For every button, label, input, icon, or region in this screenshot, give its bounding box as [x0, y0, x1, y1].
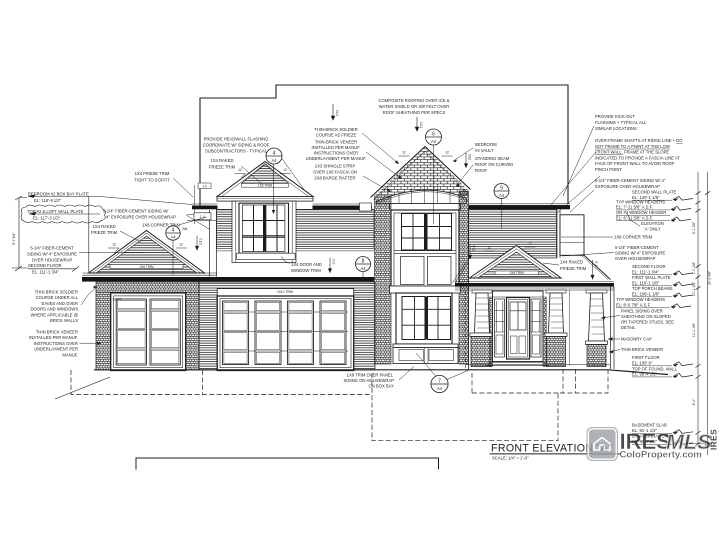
- svg-text:SECOND WALL PLATE: SECOND WALL PLATE: [632, 190, 676, 195]
- svg-text:IRES: IRES: [710, 429, 719, 450]
- svg-text:4" EXPOSURE OVER HOUSEWRAP: 4" EXPOSURE OVER HOUSEWRAP: [106, 215, 176, 220]
- svg-text:1X8 TRIM OVER PANEL: 1X8 TRIM OVER PANEL: [347, 373, 394, 378]
- svg-text:1X4 FRIEZE TRIM: 1X4 FRIEZE TRIM: [135, 171, 170, 176]
- svg-text:1X6 TRIM: 1X6 TRIM: [509, 271, 524, 275]
- svg-text:SECOND FLOOR: SECOND FLOOR: [28, 263, 62, 268]
- svg-text:PANEL SIDING OVER: PANEL SIDING OVER: [621, 309, 663, 314]
- svg-text:1-0: 1-0: [202, 184, 207, 188]
- svg-text:1X8 CORNER TRIM: 1X8 CORNER TRIM: [142, 223, 181, 228]
- svg-text:13.4: 13.4: [419, 122, 423, 128]
- svg-text:BEDROOM: BEDROOM: [475, 142, 497, 147]
- svg-text:WHERE APPLICABLE @: WHERE APPLICABLE @: [30, 312, 78, 317]
- svg-text:2X8 BARGE RAFTER: 2X8 BARGE RAFTER: [314, 176, 355, 181]
- svg-text:A4: A4: [437, 386, 443, 391]
- svg-text:5-1/4" FIBER-CEMENT: 5-1/4" FIBER-CEMENT: [615, 245, 659, 250]
- svg-text:BEDROOM #2 BOX BAY PLATE: BEDROOM #2 BOX BAY PLATE: [28, 192, 89, 197]
- svg-text:5-1/4" FIBER-CEMENT: 5-1/4" FIBER-CEMENT: [30, 246, 74, 251]
- svg-text:OVER HOUSEWRAP: OVER HOUSEWRAP: [32, 258, 73, 263]
- svg-text:A4: A4: [360, 266, 366, 271]
- svg-text:EXPOSURE OVER HOUSEWRAP: EXPOSURE OVER HOUSEWRAP: [595, 184, 660, 189]
- svg-text:FLASHING + TYPICAL ALL: FLASHING + TYPICAL ALL: [595, 120, 647, 125]
- svg-text:PROVIDE KICK-OUT: PROVIDE KICK-OUT: [595, 114, 635, 119]
- svg-text:4: 4: [172, 228, 175, 234]
- svg-text:WINDOW TRIM: WINDOW TRIM: [291, 268, 321, 273]
- svg-text:INSTALLED PER MANUF.: INSTALLED PER MANUF.: [311, 145, 360, 150]
- svg-text:5/12: 5/12: [468, 154, 472, 160]
- svg-text:5-1/4" FIBER-CEMENT SIDING W/: 5-1/4" FIBER-CEMENT SIDING W/: [103, 209, 169, 214]
- svg-text:ELEVATION: ELEVATION: [641, 221, 664, 226]
- svg-text:NOT FRAME TO A POINT AT THE LO: NOT FRAME TO A POINT AT THE LOW: [595, 144, 670, 149]
- svg-text:16070: 16070: [113, 297, 122, 301]
- svg-text:TYP WINDOW HEADERS: TYP WINDOW HEADERS: [616, 199, 665, 204]
- svg-text:DETAIL: DETAIL: [621, 325, 636, 330]
- svg-text:BRICK WALLS: BRICK WALLS: [50, 318, 78, 323]
- svg-text:THIN BRICK VENEER: THIN BRICK VENEER: [621, 347, 663, 352]
- svg-text:#4 VAULT: #4 VAULT: [475, 148, 494, 153]
- svg-text:1X4 DOOR AND: 1X4 DOOR AND: [291, 262, 322, 267]
- svg-text:INSTALLED PER MANUF.: INSTALLED PER MANUF.: [29, 335, 78, 340]
- svg-text:1'-0: 1'-0: [332, 259, 336, 264]
- svg-text:7: 7: [438, 379, 441, 385]
- svg-text:A4: A4: [271, 158, 277, 163]
- svg-text:PROVIDE HEADWALL FLASHING: PROVIDE HEADWALL FLASHING: [204, 137, 269, 142]
- svg-text:EAVES AND OVER: EAVES AND OVER: [42, 301, 78, 306]
- svg-text:SIDING W/ 4" EXPOSURE: SIDING W/ 4" EXPOSURE: [615, 251, 665, 256]
- svg-text:9'-1: 9'-1: [594, 261, 598, 266]
- svg-text:A4: A4: [499, 193, 505, 198]
- svg-text:FRIEZE TRIM: FRIEZE TRIM: [209, 165, 236, 170]
- svg-text:EL: 118'-9 1/2": EL: 118'-9 1/2": [34, 198, 62, 203]
- svg-text:10'-1 1/8": 10'-1 1/8": [692, 281, 696, 296]
- svg-text:12: 12: [283, 168, 287, 172]
- svg-text:MANUF.: MANUF.: [62, 352, 78, 357]
- svg-text:4'-1 1/8": 4'-1 1/8": [692, 221, 696, 234]
- svg-text:FIRST WALL PLATE: FIRST WALL PLATE: [632, 275, 671, 280]
- svg-text:EL: 7'-11 5/8" A.S.F.: EL: 7'-11 5/8" A.S.F.: [616, 205, 653, 210]
- svg-text:1X8 CORNER TRIM: 1X8 CORNER TRIM: [614, 235, 653, 240]
- svg-text:FRONT WALL. FRAME AT THE SLOPE: FRONT WALL. FRAME AT THE SLOPE: [595, 150, 669, 155]
- svg-text:THIN-BRICK VENEER: THIN-BRICK VENEER: [315, 140, 357, 145]
- svg-text:1X10 TRIM: 1X10 TRIM: [277, 290, 293, 294]
- svg-text:'A' ONLY: 'A' ONLY: [644, 227, 661, 232]
- svg-text:SIMILAR LOCATIONS: SIMILAR LOCATIONS: [595, 126, 637, 131]
- svg-text:BASEMENT SLAB: BASEMENT SLAB: [632, 423, 667, 428]
- svg-text:SIDING ON HOUSEWRAP: SIDING ON HOUSEWRAP: [344, 378, 395, 383]
- svg-text:4'-0": 4'-0": [692, 398, 696, 406]
- svg-text:FRIEZE TRIM: FRIEZE TRIM: [560, 266, 587, 271]
- svg-text:OR TAPERED STUDS, SEE: OR TAPERED STUDS, SEE: [621, 320, 674, 325]
- svg-text:8: 8: [362, 259, 365, 265]
- svg-text:TYP WINDOW HEADERS: TYP WINDOW HEADERS: [616, 297, 665, 302]
- svg-text:1X3 SHINGLE STRIP: 1X3 SHINGLE STRIP: [315, 164, 356, 169]
- svg-text:THIN BRICK VENEER: THIN BRICK VENEER: [36, 329, 78, 334]
- svg-text:MASONRY CAP: MASONRY CAP: [621, 337, 652, 342]
- svg-text:12.4: 12.4: [335, 110, 339, 116]
- svg-text:6: 6: [432, 132, 435, 138]
- svg-text:5/12: 5/12: [472, 245, 476, 251]
- svg-text:4: 4: [273, 151, 276, 157]
- svg-text:TOP PORCH BEAMS: TOP PORCH BEAMS: [632, 286, 673, 291]
- svg-text:10'-1 1/8": 10'-1 1/8": [692, 322, 696, 337]
- svg-text:12: 12: [528, 242, 532, 246]
- svg-text:12: 12: [487, 246, 491, 250]
- svg-text:ROOF SHEATHING PER SPECS: ROOF SHEATHING PER SPECS: [383, 110, 446, 115]
- svg-text:12: 12: [112, 243, 116, 247]
- svg-text:FRIEZE TRIM: FRIEZE TRIM: [91, 230, 118, 235]
- svg-text:INDICATED TO PROVIDE A FASCIA: INDICATED TO PROVIDE A FASCIA LINE AT: [595, 155, 680, 160]
- svg-text:EL: 110'-1 1/8": EL: 110'-1 1/8": [632, 281, 660, 286]
- svg-text:12: 12: [402, 151, 406, 155]
- svg-text:SHEATHING ON SLOPED: SHEATHING ON SLOPED: [621, 314, 671, 319]
- svg-text:1X4 RAKED: 1X4 RAKED: [92, 224, 115, 229]
- svg-text:1X4 RAKED: 1X4 RAKED: [560, 260, 583, 265]
- svg-text:SUBCONTRACTORS - TYPICAL: SUBCONTRACTORS - TYPICAL: [205, 149, 268, 154]
- svg-text:EL: 117'-3 1/2": EL: 117'-3 1/2": [33, 216, 61, 221]
- svg-text:30'-2 5/8": 30'-2 5/8": [708, 270, 712, 285]
- svg-text:EL: 109'-1 1/8": EL: 109'-1 1/8": [632, 292, 660, 297]
- svg-text:1'-0 1/8": 1'-0 1/8": [692, 261, 696, 274]
- svg-text:OVER-FRAME SHAFTS AT RIDGE LIN: OVER-FRAME SHAFTS AT RIDGE LINE + DO: [595, 138, 683, 143]
- svg-text:12: 12: [238, 168, 242, 172]
- svg-text:OVER HOUSEWRAP: OVER HOUSEWRAP: [615, 256, 656, 261]
- svg-text:THIN BRICK SOLDIER: THIN BRICK SOLDIER: [35, 289, 78, 294]
- svg-text:UNDERLAYMENT PER MANUF.: UNDERLAYMENT PER MANUF.: [306, 156, 367, 161]
- svg-text:DOORS AND WINDOWS: DOORS AND WINDOWS: [31, 307, 79, 312]
- svg-text:EL: 99'-4 1/2": EL: 99'-4 1/2": [632, 372, 658, 377]
- svg-text:ON BOX BAY: ON BOX BAY: [368, 384, 394, 389]
- svg-text:1X6 TRIM: 1X6 TRIM: [139, 265, 154, 269]
- svg-text:EL: 111'-1 3/4": EL: 111'-1 3/4": [32, 270, 59, 275]
- svg-text:OVER 1X8 FASCIA ON: OVER 1X8 FASCIA ON: [313, 170, 357, 175]
- svg-text:ROOF: ROOF: [475, 168, 488, 173]
- svg-text:5-1/4" FIBER-CEMENT SIDING W/: 5-1/4" FIBER-CEMENT SIDING W/ 4": [595, 178, 666, 183]
- svg-text:COURSE UNDER ALL: COURSE UNDER ALL: [36, 295, 79, 300]
- svg-text:BM,: BM,: [183, 227, 189, 231]
- svg-text:FACE OF FRONT WALL TO AVOID RO: FACE OF FRONT WALL TO AVOID ROOF: [595, 161, 675, 166]
- svg-text:THIN-BRICK SOLDIER: THIN-BRICK SOLDIER: [314, 127, 358, 132]
- svg-text:12: 12: [445, 151, 449, 155]
- svg-text:FIRST FLOOR: FIRST FLOOR: [632, 355, 660, 360]
- svg-text:1X4 RAKED: 1X4 RAKED: [210, 158, 233, 163]
- svg-text:SCALE: 1/4" = 1'-0": SCALE: 1/4" = 1'-0": [492, 455, 529, 460]
- svg-text:12: 12: [179, 243, 183, 247]
- svg-text:9'-7 3/4": 9'-7 3/4": [12, 232, 16, 245]
- svg-text:UNDERLAYMENT PER: UNDERLAYMENT PER: [34, 347, 78, 352]
- svg-text:INSTRUCTIONS OVER: INSTRUCTIONS OVER: [314, 151, 358, 156]
- svg-text:A4: A4: [431, 139, 437, 144]
- svg-text:EL: 8'-0 7/8" A.S.F.: EL: 8'-0 7/8" A.S.F.: [616, 303, 651, 308]
- svg-text:INSTRUCTIONS OVER: INSTRUCTIONS OVER: [34, 341, 78, 346]
- svg-text:SECOND FLOOR: SECOND FLOOR: [632, 264, 666, 269]
- svg-text:A4: A4: [170, 235, 176, 240]
- svg-text:1X6 TRIM: 1X6 TRIM: [258, 184, 273, 188]
- svg-text:COMPOSITE ROOFING OVER ICE &: COMPOSITE ROOFING OVER ICE &: [379, 98, 450, 103]
- svg-text:WATER SHIELD OR 30# FELT OVER: WATER SHIELD OR 30# FELT OVER: [379, 104, 450, 109]
- svg-text:SIDING W/ 4" EXPOSURE: SIDING W/ 4" EXPOSURE: [27, 252, 77, 257]
- svg-text:COORDINATE W/ SIDING & ROOF: COORDINATE W/ SIDING & ROOF: [203, 143, 270, 148]
- svg-text:EL: 100'-0": EL: 100'-0": [632, 361, 653, 366]
- svg-text:ColoProperty.com: ColoProperty.com: [620, 449, 702, 460]
- svg-text:TIGHT TO SOFFIT: TIGHT TO SOFFIT: [134, 178, 170, 183]
- svg-text:OR #2 WINDOW HEADER: OR #2 WINDOW HEADER: [616, 210, 666, 215]
- svg-text:PINCH POINT: PINCH POINT: [595, 167, 622, 172]
- svg-text:9: 9: [500, 186, 503, 192]
- svg-text:EL: 111'-1 3/4": EL: 111'-1 3/4": [632, 270, 659, 275]
- svg-text:ROOF ON CURVED: ROOF ON CURVED: [475, 162, 513, 167]
- svg-text:5 1/2: 5 1/2: [199, 238, 203, 245]
- svg-text:COURSE AS FRIEZE: COURSE AS FRIEZE: [316, 133, 357, 138]
- svg-text:TOP OF FOUND. WALL: TOP OF FOUND. WALL: [632, 366, 678, 371]
- svg-text:EL: 6'-11 5/8" A.S.F.: EL: 6'-11 5/8" A.S.F.: [616, 215, 653, 220]
- svg-text:STANDING SEAM: STANDING SEAM: [475, 156, 510, 161]
